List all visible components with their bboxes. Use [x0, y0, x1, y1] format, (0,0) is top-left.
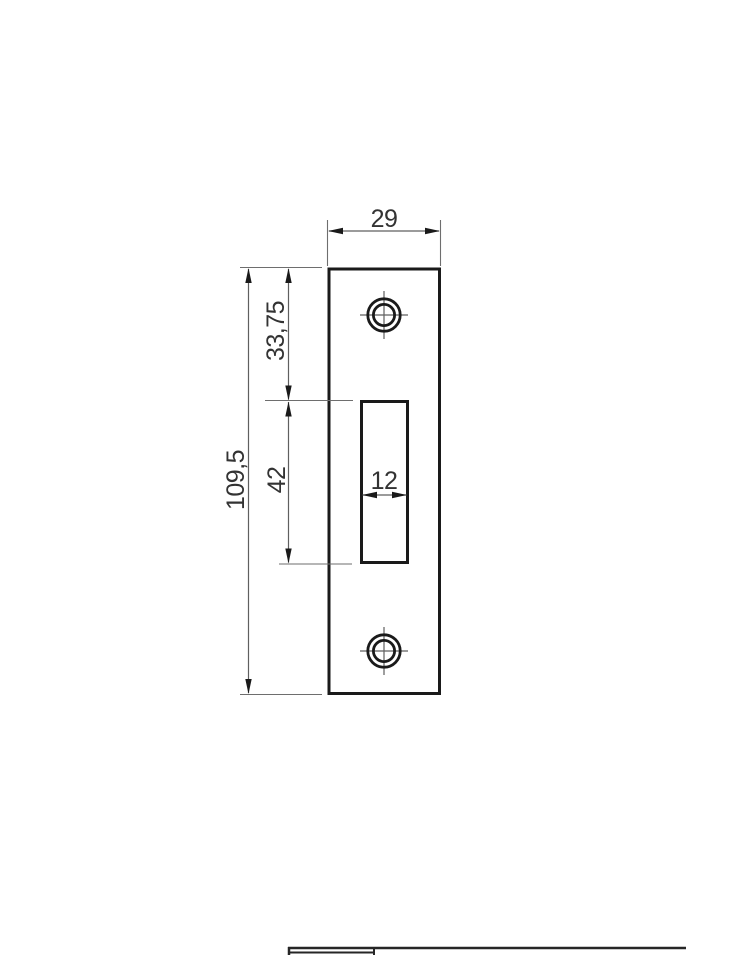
dimension-top-to-slot: 33,75: [262, 268, 353, 401]
arrowhead-down: [285, 386, 291, 401]
dim-plate-width-label: 29: [371, 205, 398, 233]
screw-hole-bottom: [360, 627, 408, 675]
dim-top-to-slot-label: 33,75: [262, 301, 290, 361]
dimension-plate-width: 29: [328, 205, 441, 266]
dimension-slot-width: 12: [362, 467, 407, 498]
dimension-slot-length: 42: [263, 402, 352, 565]
technical-drawing-canvas: 29 109,5 33,75 42: [0, 0, 738, 955]
arrowhead-down: [285, 549, 291, 564]
arrowhead-down: [245, 679, 251, 694]
dim-plate-length-label: 109,5: [222, 450, 250, 510]
dim-slot-length-label: 42: [263, 467, 291, 494]
dim-slot-width-label: 12: [371, 467, 398, 495]
arrowhead-up: [245, 268, 251, 283]
arrowhead-right: [425, 228, 440, 234]
arrowhead-up: [285, 402, 291, 417]
drawing-sheet: 29 109,5 33,75 42: [0, 0, 738, 955]
screw-hole-top: [360, 291, 408, 339]
title-block-border: [288, 947, 686, 955]
arrowhead-up: [285, 268, 291, 283]
arrowhead-left: [328, 228, 343, 234]
